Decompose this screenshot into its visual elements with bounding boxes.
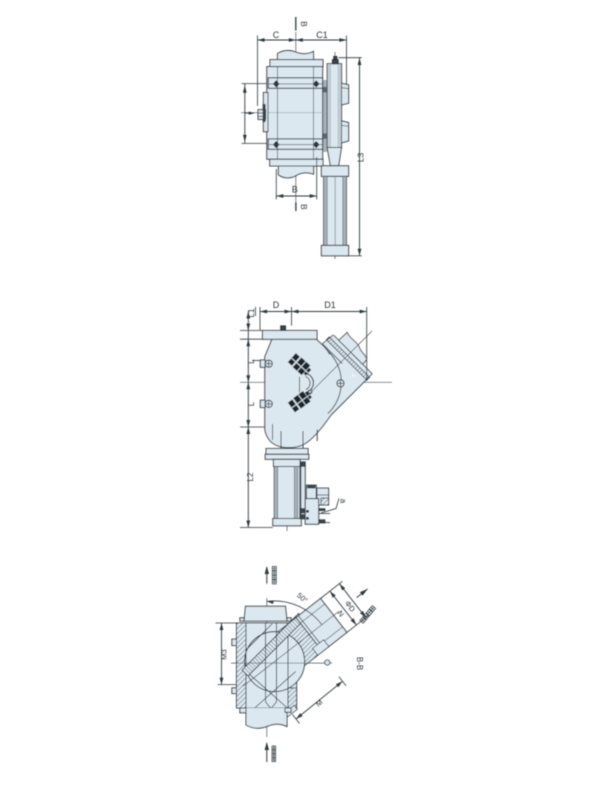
svg-text:D1: D1 <box>324 300 336 310</box>
svg-text:B-B: B-B <box>355 657 364 670</box>
svg-text:a: a <box>339 499 348 504</box>
svg-text:B: B <box>299 21 309 27</box>
svg-text:L: L <box>247 359 256 364</box>
svg-text:L2: L2 <box>246 472 255 481</box>
svg-text:B: B <box>299 204 309 210</box>
svg-text:D: D <box>273 300 280 310</box>
svg-text:C: C <box>273 30 280 40</box>
svg-text:L3: L3 <box>356 153 366 163</box>
svg-text:L1: L1 <box>247 308 256 317</box>
svg-text:C1: C1 <box>316 30 328 40</box>
svg-text:L: L <box>247 401 256 406</box>
svg-text:B: B <box>292 184 298 194</box>
svg-text:M3: M3 <box>220 649 229 659</box>
